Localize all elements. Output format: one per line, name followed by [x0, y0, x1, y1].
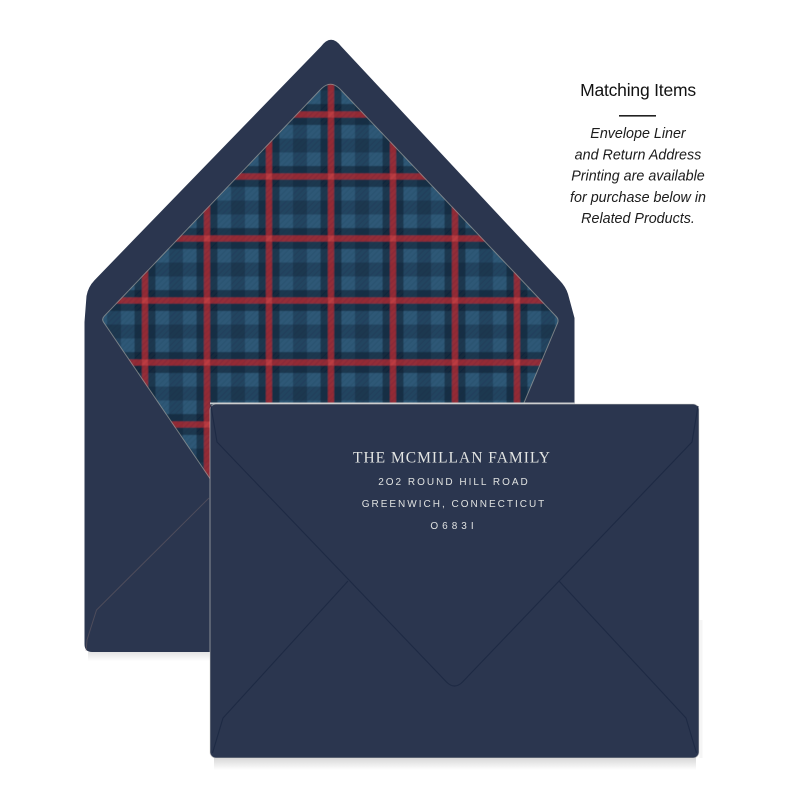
svg-text:O683I: O683I — [430, 521, 477, 532]
svg-text:Matching Items: Matching Items — [580, 80, 696, 100]
svg-text:and Return Address: and Return Address — [575, 147, 702, 163]
svg-text:for purchase below in: for purchase below in — [570, 190, 706, 206]
svg-text:Envelope Liner: Envelope Liner — [590, 126, 687, 142]
svg-text:GREENWICH, CONNECTICUT: GREENWICH, CONNECTICUT — [362, 499, 547, 510]
svg-text:2O2 ROUND HILL ROAD: 2O2 ROUND HILL ROAD — [378, 477, 530, 488]
svg-text:Related Products.: Related Products. — [581, 211, 695, 227]
svg-text:THE MCMILLAN FAMILY: THE MCMILLAN FAMILY — [353, 450, 551, 467]
svg-text:Printing are available: Printing are available — [571, 169, 705, 185]
